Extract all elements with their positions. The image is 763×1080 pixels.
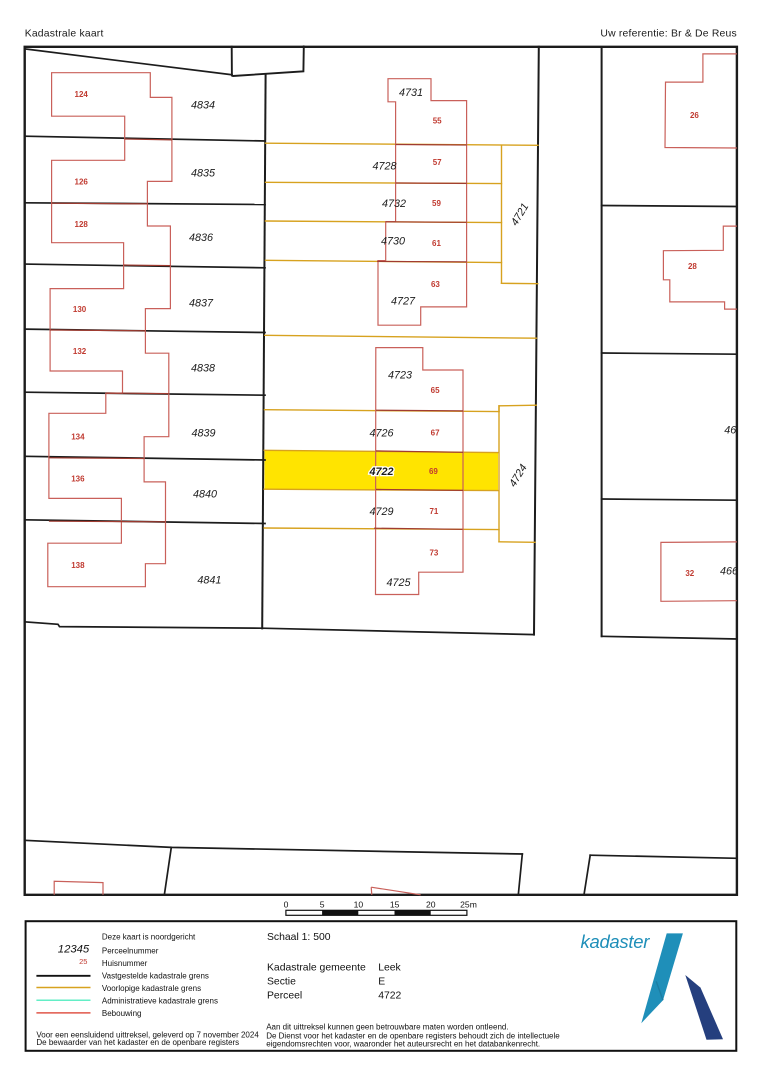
svg-text:124: 124 — [75, 90, 89, 99]
svg-text:5: 5 — [320, 900, 325, 910]
svg-text:4727: 4727 — [391, 296, 416, 308]
svg-text:59: 59 — [432, 199, 441, 208]
svg-text:26: 26 — [690, 111, 699, 120]
svg-text:Vastgestelde kadastrale grens: Vastgestelde kadastrale grens — [102, 972, 209, 981]
svg-text:73: 73 — [429, 549, 438, 558]
svg-text:128: 128 — [75, 220, 89, 229]
svg-text:kadaster: kadaster — [581, 931, 651, 952]
svg-text:10: 10 — [354, 900, 364, 910]
svg-text:Huisnummer: Huisnummer — [102, 959, 148, 968]
svg-text:Perceel: Perceel — [267, 991, 302, 1002]
svg-text:20: 20 — [426, 900, 436, 910]
svg-text:63: 63 — [431, 280, 440, 289]
svg-text:46: 46 — [724, 425, 736, 437]
svg-text:61: 61 — [432, 239, 441, 248]
svg-text:132: 132 — [73, 347, 87, 356]
svg-text:4722: 4722 — [368, 466, 393, 478]
svg-text:E: E — [378, 977, 385, 988]
svg-text:69: 69 — [429, 467, 438, 476]
svg-text:134: 134 — [71, 432, 85, 441]
svg-text:4835: 4835 — [191, 168, 216, 180]
svg-text:4838: 4838 — [191, 363, 215, 375]
svg-text:Administratieve kadastrale gre: Administratieve kadastrale grens — [102, 997, 218, 1006]
svg-text:Kadastrale kaart: Kadastrale kaart — [25, 29, 104, 40]
svg-text:4840: 4840 — [193, 489, 217, 501]
svg-text:Deze kaart is noordgericht: Deze kaart is noordgericht — [102, 932, 196, 941]
svg-text:eigendomsrechten voor, waarond: eigendomsrechten voor, waaronder het aut… — [266, 1040, 540, 1049]
svg-text:12345: 12345 — [58, 943, 90, 955]
svg-text:4731: 4731 — [399, 87, 423, 99]
svg-text:Leek: Leek — [378, 963, 401, 974]
svg-text:Perceelnummer: Perceelnummer — [102, 946, 159, 955]
svg-text:Uw referentie: Br & De Reus: Uw referentie: Br & De Reus — [600, 29, 737, 40]
svg-text:4839: 4839 — [191, 428, 215, 440]
svg-text:136: 136 — [71, 474, 85, 483]
svg-text:4837: 4837 — [189, 298, 214, 310]
svg-text:25: 25 — [79, 957, 87, 966]
svg-text:De bewaarder van het kadaster: De bewaarder van het kadaster en de open… — [36, 1038, 239, 1047]
svg-text:4730: 4730 — [381, 236, 405, 248]
svg-text:65: 65 — [431, 386, 440, 395]
svg-text:466: 466 — [720, 565, 738, 577]
svg-text:Sectie: Sectie — [267, 977, 296, 988]
svg-text:57: 57 — [433, 158, 442, 167]
svg-text:130: 130 — [73, 305, 87, 314]
svg-text:4721: 4721 — [509, 201, 532, 228]
svg-text:4834: 4834 — [191, 100, 215, 112]
svg-text:Schaal 1: 500: Schaal 1: 500 — [267, 932, 331, 943]
svg-text:138: 138 — [71, 561, 85, 570]
svg-text:Aan dit uittreksel kunnen geen: Aan dit uittreksel kunnen geen betrouwba… — [266, 1022, 508, 1031]
svg-text:4729: 4729 — [369, 506, 393, 518]
svg-text:28: 28 — [688, 262, 697, 271]
svg-text:4836: 4836 — [189, 232, 213, 244]
svg-text:0: 0 — [284, 900, 289, 910]
svg-text:126: 126 — [75, 178, 89, 187]
svg-text:Voorlopige kadastrale grens: Voorlopige kadastrale grens — [102, 984, 201, 993]
svg-text:4841: 4841 — [197, 574, 221, 586]
svg-text:67: 67 — [431, 429, 440, 438]
svg-text:25m: 25m — [460, 900, 477, 910]
svg-text:Bebouwing: Bebouwing — [102, 1009, 142, 1018]
svg-text:4726: 4726 — [369, 428, 393, 440]
svg-text:4732: 4732 — [382, 198, 406, 210]
svg-text:71: 71 — [429, 507, 438, 516]
svg-text:4723: 4723 — [388, 370, 412, 382]
svg-text:4725: 4725 — [386, 577, 411, 589]
svg-text:32: 32 — [685, 569, 694, 578]
svg-text:55: 55 — [433, 117, 442, 126]
svg-text:Kadastrale gemeente: Kadastrale gemeente — [267, 963, 366, 974]
svg-text:15: 15 — [390, 900, 400, 910]
svg-text:4728: 4728 — [372, 160, 396, 172]
svg-text:4722: 4722 — [378, 991, 401, 1002]
svg-text:4724: 4724 — [507, 462, 530, 489]
